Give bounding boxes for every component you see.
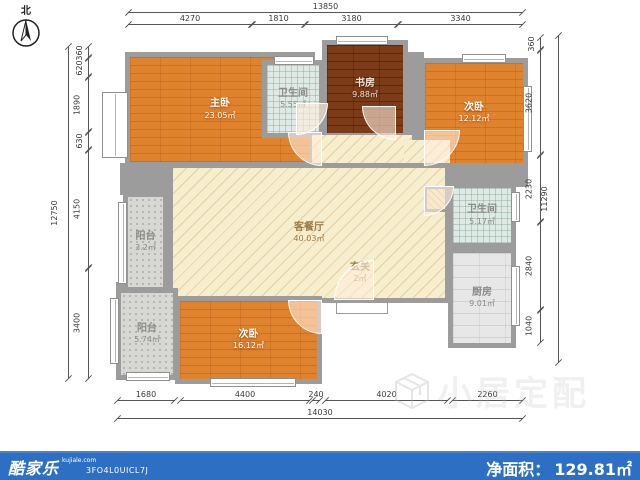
dim-top-seg3: 3180	[305, 24, 398, 25]
window-kitchen-right	[511, 266, 520, 326]
dim-bottom-total: 14030	[117, 418, 523, 419]
dim-bottom-seg3: 240	[312, 400, 320, 401]
dim-right-seg5: 1040	[540, 310, 541, 342]
north-indicator: 北	[8, 2, 44, 53]
window-balcony2-bottom	[126, 372, 170, 381]
brand-name: 酷家乐	[8, 455, 59, 479]
room-living-dining[interactable]: 客餐厅40.03㎡	[168, 163, 450, 303]
watermark-text: 小居定配	[438, 366, 590, 415]
room-area: 16.12㎡	[233, 341, 264, 351]
room-name: 主卧	[205, 98, 236, 111]
brand-site: kujiale.com	[62, 457, 96, 464]
wall-segment	[120, 163, 170, 195]
dim-top-seg2: 1810	[252, 24, 305, 25]
plan-code: 3FO4L0UICL7J	[86, 466, 148, 475]
room-kitchen[interactable]: 厨房9.01㎡	[448, 248, 516, 348]
floorplan-canvas: 北 主卧23.05㎡ 卫生间5.55㎡ 书房9.88㎡ 次卧12.12㎡ 客餐厅…	[0, 0, 640, 480]
window-balcony1-left	[118, 202, 127, 284]
dim-right-seg2: 3620	[540, 50, 541, 155]
room-name: 阳台	[134, 323, 160, 336]
window-study-top	[336, 36, 388, 45]
watermark-cube-icon	[392, 371, 432, 411]
dim-top-seg4: 3340	[398, 24, 523, 25]
room-name: 卫生间	[467, 204, 497, 217]
window-bath2-right	[511, 192, 520, 222]
window-bed3-bottom	[210, 378, 296, 387]
window-balcony2-left	[110, 298, 119, 364]
compass-icon	[10, 17, 42, 49]
dim-top-seg1: 4270	[128, 24, 252, 25]
room-area: 40.03㎡	[294, 234, 325, 244]
room-name: 阳台	[135, 231, 156, 244]
window-bay-master	[102, 92, 128, 158]
dim-left-seg5: 4150	[88, 150, 89, 268]
room-bathroom-right[interactable]: 卫生间5.17㎡	[448, 183, 516, 248]
dim-left-total: 12750	[68, 47, 69, 378]
room-name: 次卧	[459, 102, 490, 115]
room-area: 23.05㎡	[205, 111, 236, 121]
dim-right-seg4: 2840	[540, 222, 541, 310]
dim-bottom-seg2: 4400	[180, 400, 310, 401]
room-name: 卫生间	[278, 88, 308, 101]
room-balcony-left[interactable]: 阳台3.2㎡	[123, 192, 168, 292]
dim-left-seg3: 1890	[88, 77, 89, 132]
kujiale-logo: 酷家乐 kujiale.com	[8, 455, 96, 479]
dim-bottom-seg1: 1680	[117, 400, 175, 401]
dim-right-total: 11290	[558, 36, 559, 362]
dim-bottom-seg5: 2260	[452, 400, 523, 401]
room-area: 12.12㎡	[459, 114, 490, 124]
room-balcony-bottom[interactable]: 阳台5.74㎡	[116, 288, 178, 380]
room-area: 5.74㎡	[134, 335, 160, 345]
room-area: 9.01㎡	[469, 299, 495, 309]
room-area: 5.17㎡	[467, 217, 497, 227]
net-area: 净面积：129.81㎡	[486, 456, 632, 480]
room-name: 客餐厅	[294, 222, 325, 235]
net-area-value: 129.81㎡	[554, 460, 632, 479]
window-bath-top	[274, 56, 314, 65]
footer-bar: 酷家乐 kujiale.com 3FO4L0UICL7J 净面积：129.81㎡	[0, 451, 640, 480]
room-name: 书房	[352, 78, 378, 91]
entry-step	[336, 302, 388, 314]
net-area-label: 净面积：	[486, 460, 550, 479]
dim-top-total: 13850	[128, 12, 523, 13]
window-bed2-top	[462, 54, 506, 63]
dim-left-seg6: 3400	[88, 268, 89, 378]
room-name: 厨房	[469, 287, 495, 300]
room-name: 次卧	[233, 329, 264, 342]
room-area: 9.88㎡	[352, 90, 378, 100]
room-area: 3.2㎡	[135, 243, 156, 253]
north-label: 北	[8, 2, 44, 17]
dim-bottom-seg4: 4020	[325, 400, 448, 401]
